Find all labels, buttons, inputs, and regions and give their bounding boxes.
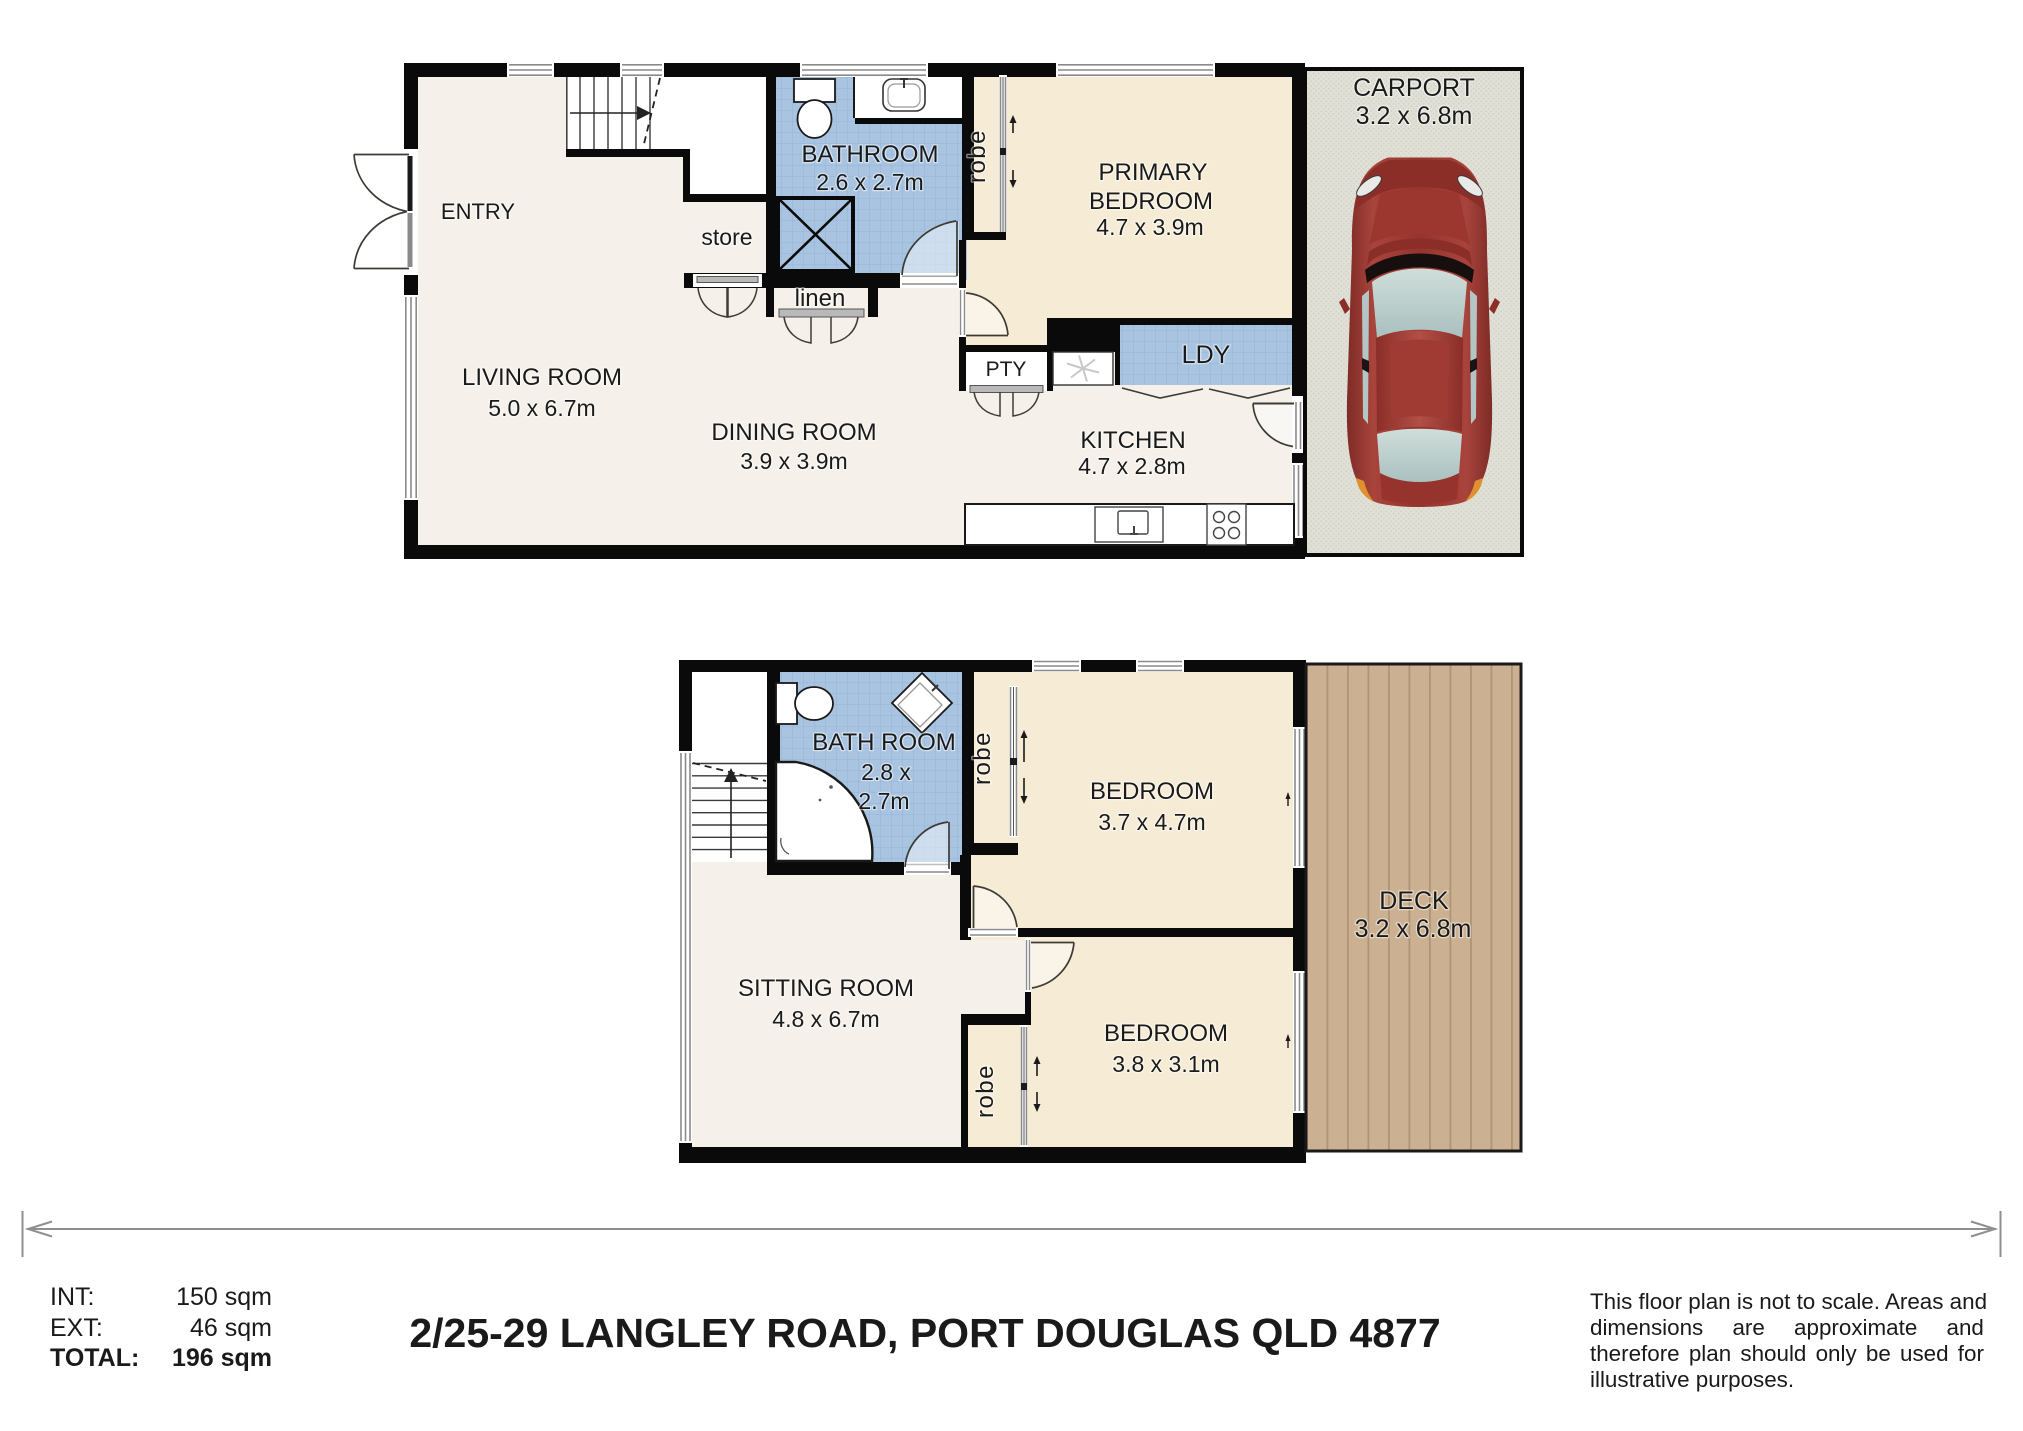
svg-text:illustrative purposes.: illustrative purposes. [1590,1367,1794,1392]
svg-text:150 sqm: 150 sqm [176,1283,272,1311]
svg-text:LDY: LDY [1182,341,1231,369]
svg-text:CARPORT: CARPORT [1353,74,1475,102]
svg-text:EXT:: EXT: [50,1314,103,1342]
svg-text:4.7 x 2.8m: 4.7 x 2.8m [1078,453,1185,479]
svg-text:KITCHEN: KITCHEN [1080,427,1185,454]
svg-text:3.8 x 3.1m: 3.8 x 3.1m [1112,1051,1219,1077]
svg-text:BEDROOM: BEDROOM [1104,1020,1228,1047]
svg-text:5.0 x 6.7m: 5.0 x 6.7m [488,395,595,421]
svg-text:DECK: DECK [1379,887,1449,915]
svg-text:therefore plan should only be: therefore plan should only be used for [1590,1341,1984,1366]
svg-text:ENTRY: ENTRY [441,199,515,224]
svg-text:store: store [701,224,752,250]
svg-text:4.8 x 6.7m: 4.8 x 6.7m [772,1006,879,1032]
svg-text:2.8 x: 2.8 x [861,759,911,785]
svg-text:196 sqm: 196 sqm [172,1344,272,1372]
svg-text:LIVING ROOM: LIVING ROOM [462,364,622,391]
svg-text:INT:: INT: [50,1283,94,1311]
svg-text:2/25-29 LANGLEY ROAD, PORT DOU: 2/25-29 LANGLEY ROAD, PORT DOUGLAS QLD 4… [409,1310,1440,1356]
svg-text:BATHROOM: BATHROOM [802,141,939,168]
svg-text:2.7m: 2.7m [858,788,909,814]
svg-text:3.2 x 6.8m: 3.2 x 6.8m [1356,102,1473,130]
svg-text:BATH ROOM: BATH ROOM [812,729,956,756]
svg-text:PTY: PTY [986,358,1027,381]
svg-text:This floor plan is not to scal: This floor plan is not to scale. Areas a… [1590,1289,1987,1314]
svg-text:DINING ROOM: DINING ROOM [711,419,876,446]
svg-text:robe: robe [969,731,996,785]
svg-text:2.6 x 2.7m: 2.6 x 2.7m [816,169,923,195]
svg-text:linen: linen [795,285,846,312]
svg-text:SITTING ROOM: SITTING ROOM [738,975,914,1002]
svg-text:robe: robe [972,1064,999,1118]
svg-text:dimensions are approximate and: dimensions are approximate and [1590,1315,1984,1340]
svg-text:46 sqm: 46 sqm [190,1314,272,1342]
svg-text:BEDROOM: BEDROOM [1090,778,1214,805]
svg-text:PRIMARY: PRIMARY [1099,159,1208,186]
svg-text:3.9 x 3.9m: 3.9 x 3.9m [740,448,847,474]
svg-text:3.2 x 6.8m: 3.2 x 6.8m [1355,915,1472,943]
svg-text:4.7 x 3.9m: 4.7 x 3.9m [1096,214,1203,240]
svg-text:3.7 x 4.7m: 3.7 x 4.7m [1098,809,1205,835]
svg-text:TOTAL:: TOTAL: [50,1344,139,1372]
svg-text:BEDROOM: BEDROOM [1089,188,1213,215]
svg-text:robe: robe [964,129,991,183]
